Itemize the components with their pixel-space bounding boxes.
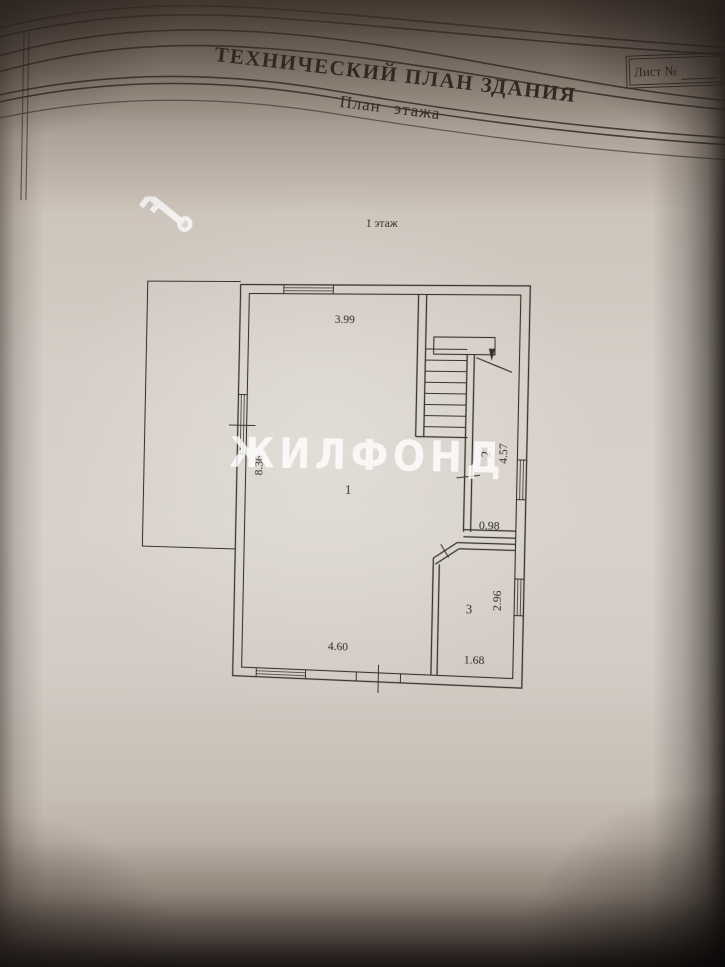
watermark-key-icon	[120, 196, 198, 255]
floor-label: 1 этаж	[366, 218, 398, 230]
floor-plan: 1 этаж	[111, 195, 570, 716]
staircase	[416, 294, 496, 438]
dim-bottom-wall: 4.60	[328, 641, 348, 654]
window-right-upper	[517, 460, 527, 500]
watermark-text: ЖИЛФОНД	[229, 428, 506, 483]
outer-wall	[233, 285, 531, 689]
room-label-1: 1	[345, 483, 352, 498]
opening-bottom	[356, 664, 401, 694]
dim-right-lower: 2.96	[491, 590, 504, 611]
sheet-number-label: Лист №	[634, 62, 677, 79]
sheet-number-blank	[681, 60, 718, 80]
window-right-lower	[514, 579, 524, 616]
room-label-3: 3	[466, 602, 473, 617]
dim-top-wall: 3.99	[335, 314, 355, 326]
dim-bottom-right: 1.68	[464, 654, 485, 667]
sheet-number-box-inner: Лист №	[629, 55, 723, 85]
annex-outline	[142, 281, 240, 549]
stair-diagonal	[476, 358, 512, 373]
inner-wall	[242, 293, 521, 678]
window-top	[284, 285, 334, 294]
sheet-number-box: Лист №	[625, 52, 725, 88]
dim-passage: 0.98	[479, 520, 500, 533]
photographed-technical-plan-page: ТЕХНИЧЕСКИЙ ПЛАН ЗДАНИЯ План этажа Лист …	[0, 0, 725, 967]
